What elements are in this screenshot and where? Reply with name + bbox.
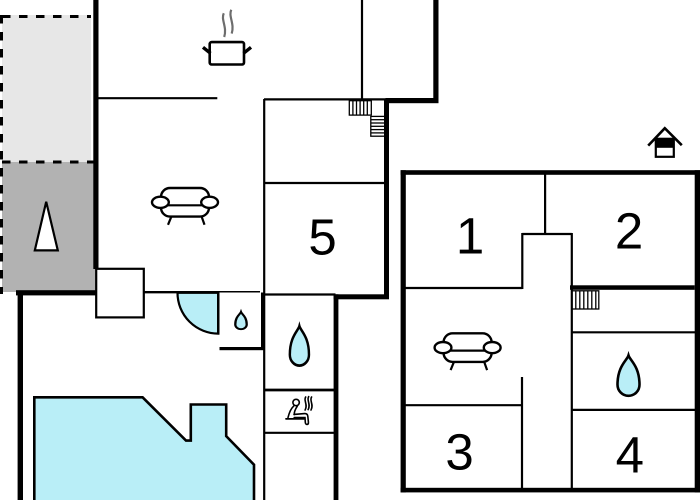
svg-text:5: 5 xyxy=(308,208,336,265)
svg-text:1: 1 xyxy=(456,208,484,265)
svg-text:4: 4 xyxy=(616,426,644,483)
svg-text:2: 2 xyxy=(615,203,643,260)
svg-text:3: 3 xyxy=(445,424,473,481)
